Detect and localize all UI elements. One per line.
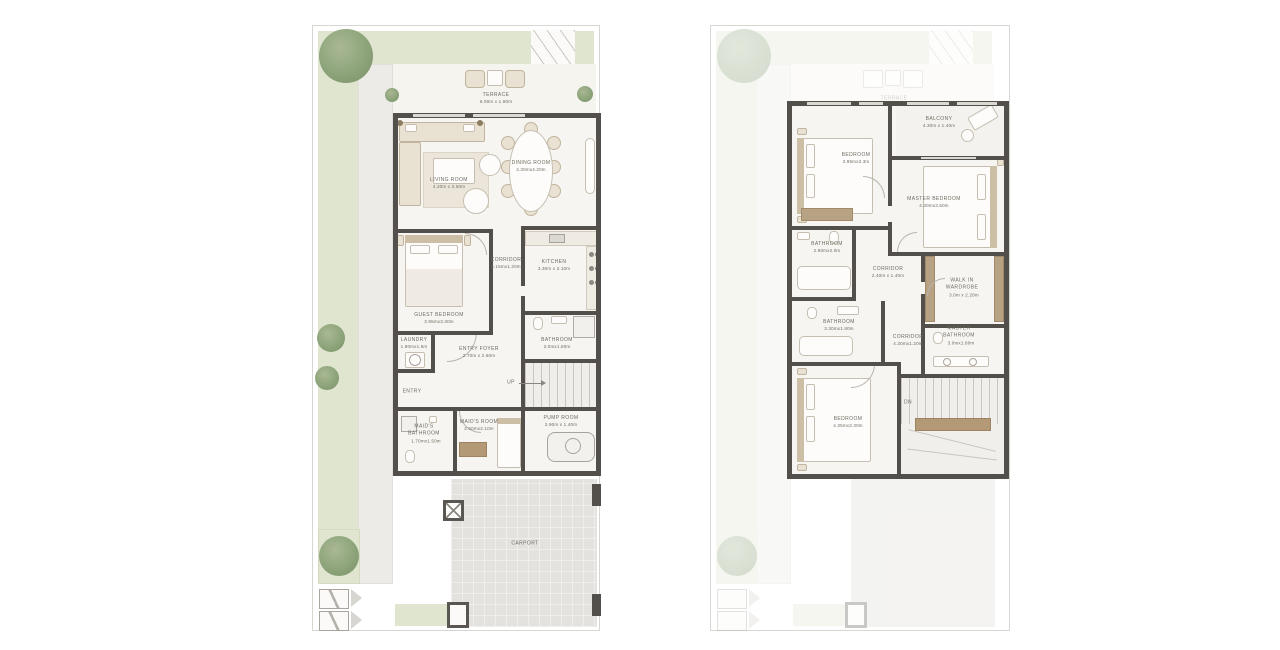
room-label-kitchen: KITCHEN 3.30m x 3.10m [538, 259, 570, 273]
room-label-terrace: TERRACE 6.00m x 1.80m [480, 92, 512, 106]
credenza [585, 138, 595, 194]
room-label-balcony: BALCONY 4.30m x 1.40m [923, 116, 955, 130]
tree [319, 29, 373, 83]
room-label-maids-room: MAID'S ROOM 2.60mx2.10m [460, 419, 498, 433]
bed-pillow [977, 214, 986, 240]
room-dims: 2.70m x 2.60m [459, 353, 499, 360]
wall [393, 113, 398, 476]
room-name: ENTRY [403, 388, 422, 395]
glass-door [413, 114, 465, 117]
terrace-table [487, 70, 503, 86]
wall [852, 230, 856, 297]
wall [393, 407, 525, 411]
room-label-master-bathroom: MASTER BATHROOM 3.0mx1.80m [939, 325, 983, 346]
sofa-pillow [405, 124, 417, 132]
window [907, 102, 949, 105]
room-dims: 3.0mx1.80m [541, 344, 573, 351]
utility-meter [319, 589, 349, 609]
bed-blanket [406, 269, 462, 306]
room-dims: 4.30mx1.20m [893, 341, 923, 348]
toilet [807, 307, 817, 319]
wall [596, 113, 601, 476]
wall-stub [592, 594, 601, 616]
sliding-door [921, 157, 976, 159]
room-name: BEDROOM [833, 416, 862, 423]
nightstand [797, 368, 807, 375]
carport-floor [851, 478, 995, 627]
gate-marker [351, 611, 362, 629]
room-dims: 3.0m x 2.20m [941, 292, 987, 299]
utility-meter [717, 589, 747, 609]
garden-strip-bottom [395, 604, 447, 626]
room-name: ENTRY FOYER [459, 346, 499, 353]
utility-meter [717, 611, 747, 631]
ground-floor-plan: TERRACE 6.00m x 1.80m LIVING ROOM 4.20m … [312, 25, 600, 631]
dresser [459, 442, 487, 457]
utility-meter [319, 611, 349, 631]
room-dims: 3.30mx1.80m [823, 326, 855, 333]
room-dims: 4.35mx3.30m [833, 423, 862, 430]
stair-winder-line [907, 449, 996, 461]
room-dims: 1.90mx1.6m [401, 344, 428, 351]
room-dims: 2.90m x 1.40m [544, 422, 579, 429]
room-name: LIVING ROOM [430, 177, 468, 184]
stove-burner [589, 252, 594, 257]
room-dims: 3.0mx1.80m [939, 340, 983, 347]
balcony-table [961, 129, 974, 142]
room-name: BATHROOM [811, 241, 843, 248]
room-name: BEDROOM [842, 152, 871, 159]
room-dims: 2.60mx2.10m [460, 426, 498, 433]
room-name: BATHROOM [541, 337, 573, 344]
room-name: CORRIDOR [872, 266, 904, 273]
sink [429, 416, 437, 423]
garden-strip-bottom [793, 604, 845, 626]
tree [317, 324, 345, 352]
room-dims: 2.80mx2.0m [811, 248, 843, 255]
tree [717, 29, 771, 83]
room-name: DN [904, 399, 912, 406]
nightstand [397, 235, 404, 246]
basin [969, 358, 977, 366]
terrace-armchair [863, 70, 883, 88]
sink [797, 232, 810, 240]
room-dims: 1.70mx1.50m [406, 438, 446, 445]
stairs-down-label: DN [904, 399, 912, 406]
stove-burner [589, 266, 594, 271]
room-dims: 3.95mx3.30m [414, 319, 464, 326]
room-label-pump-room: PUMP ROOM 2.90m x 1.40m [544, 415, 579, 429]
room-label-bedroom-2: BEDROOM 4.35mx3.30m [833, 416, 862, 430]
bed-pillow [410, 245, 430, 254]
bed-pillow [806, 416, 815, 442]
nightstand [797, 128, 807, 135]
room-dims: 4.15mx1.20m [491, 264, 521, 271]
room-label-carport: CARPORT [511, 540, 538, 547]
nightstand [797, 464, 807, 471]
wall [521, 359, 601, 363]
bush [385, 88, 399, 102]
room-dims: 6.00m x 1.80m [480, 99, 512, 106]
room-label-living-room: LIVING ROOM 4.20m x 3.50m [430, 177, 468, 191]
bathtub [799, 336, 853, 356]
wardrobe [801, 208, 853, 221]
wall [897, 362, 901, 479]
window [859, 102, 883, 105]
column-shaft [443, 500, 464, 521]
basin [943, 358, 951, 366]
room-label-walk-in-wardrobe: WALK IN WARDROBE 3.0m x 2.20m [941, 277, 987, 298]
room-name: UP [507, 379, 515, 386]
sofa-pillow [463, 124, 475, 132]
carport-floor [451, 479, 597, 627]
wall [787, 101, 792, 479]
room-name: KITCHEN [538, 259, 570, 266]
stairs-up-label: UP [507, 379, 515, 386]
bed [497, 418, 521, 468]
staircase [525, 363, 596, 407]
entry-gate-top [531, 30, 575, 64]
bed-pillow [806, 384, 815, 410]
room-label-corridor-2: CORRIDOR 4.30mx1.20m [893, 334, 923, 348]
wall [888, 252, 1009, 256]
room-name: CORRIDOR [893, 334, 923, 341]
first-floor-plan: TERRACE BEDROOM 3. [710, 25, 1010, 631]
sofa [399, 142, 421, 206]
tree [315, 366, 339, 390]
gate-marker [351, 589, 362, 607]
room-dims: 4.30mx3.60m [907, 203, 961, 210]
room-dims: 3.30m x 3.10m [538, 266, 570, 273]
wall [899, 374, 1009, 378]
bed-headboard [990, 166, 997, 248]
wall [792, 226, 892, 230]
stove-burner [589, 280, 594, 285]
room-label-dining-room: DINING ROOM 4.30mx4.20m [512, 160, 551, 174]
bed-pillow [806, 144, 815, 168]
terrace-armchair [903, 70, 923, 88]
wall-stub [592, 484, 601, 506]
terrace-armchair [505, 70, 525, 88]
terrace-table [885, 70, 901, 86]
room-label-corridor: CORRIDOR 4.15mx1.20m [491, 257, 521, 271]
side-walkway [756, 64, 791, 584]
room-label-entry-foyer: ENTRY FOYER 2.70m x 2.60m [459, 346, 499, 360]
double-vanity [933, 356, 989, 367]
room-name: MASTER BEDROOM [907, 196, 961, 203]
bed-pillow [438, 245, 458, 254]
pedestrian-door [845, 602, 867, 628]
room-label-bathroom-1: BATHROOM 2.80mx2.0m [811, 241, 843, 255]
wall [792, 362, 897, 366]
room-name: BALCONY [923, 116, 955, 123]
window [807, 102, 851, 105]
room-name: CARPORT [511, 540, 538, 547]
room-label-entry: ENTRY [403, 388, 422, 395]
pedestrian-door [447, 602, 469, 628]
wall [521, 311, 601, 315]
room-name: LAUNDRY [401, 337, 428, 344]
side-table [479, 154, 501, 176]
up-arrow-icon [541, 380, 546, 386]
room-name: WALK IN WARDROBE [941, 277, 983, 292]
room-label-master-bedroom: MASTER BEDROOM 4.30mx3.60m [907, 196, 961, 210]
stair-handrail [915, 418, 991, 431]
room-label-bathroom-2: BATHROOM 3.30mx1.80m [823, 319, 855, 333]
gate-marker [749, 589, 760, 607]
pump [565, 438, 581, 454]
garden-strip-left [318, 31, 358, 584]
tree [319, 536, 359, 576]
stair-winder-line [908, 429, 996, 452]
gate-marker [749, 611, 760, 629]
terrace-armchair [465, 70, 485, 88]
wall [393, 229, 493, 233]
room-name: GUEST BEDROOM [414, 312, 464, 319]
room-name: PUMP ROOM [544, 415, 579, 422]
wall [921, 256, 925, 282]
toilet [405, 450, 415, 463]
wall [521, 226, 601, 230]
room-label-guest-bedroom: GUEST BEDROOM 3.95mx3.30m [414, 312, 464, 326]
room-label-bedroom-1: BEDROOM 3.95mx3.3m [842, 152, 871, 166]
kitchen-sink [549, 234, 565, 243]
room-name: BATHROOM [823, 319, 855, 326]
wall [453, 411, 457, 471]
bed-headboard [405, 235, 463, 243]
wall [521, 411, 525, 471]
bush [577, 86, 593, 102]
room-name: MAID'S BATHROOM [406, 423, 442, 438]
wall [489, 229, 493, 335]
sink [551, 316, 567, 324]
side-table [463, 188, 489, 214]
room-label-corridor-1: CORRIDOR 2.40m x 1.40m [872, 266, 904, 280]
room-dims: 4.30mx4.20m [512, 167, 551, 174]
tree [717, 536, 757, 576]
room-dims: 3.95mx3.3m [842, 159, 871, 166]
shower [573, 316, 595, 338]
room-name: CORRIDOR [491, 257, 521, 264]
side-walkway [358, 64, 393, 584]
sink [837, 306, 859, 315]
room-label-bathroom: BATHROOM 3.0mx1.80m [541, 337, 573, 351]
garden-strip-left [716, 31, 756, 584]
room-name: MASTER BATHROOM [939, 325, 979, 340]
floor-lamp [477, 120, 483, 126]
wall [521, 407, 601, 411]
up-arrow-line [519, 383, 541, 384]
glass-door [473, 114, 525, 117]
entry-gate-top [929, 30, 973, 64]
washer-drum [409, 354, 421, 366]
wall [393, 331, 493, 335]
room-label-maids-bathroom: MAID'S BATHROOM 1.70mx1.50m [406, 423, 446, 444]
room-name: TERRACE [480, 92, 512, 99]
wall [881, 301, 885, 362]
bed-headboard [497, 418, 521, 424]
wall [393, 471, 601, 476]
wall [521, 226, 525, 286]
bathtub [797, 266, 851, 290]
window [957, 102, 997, 105]
room-name: DINING ROOM [512, 160, 551, 167]
bed-pillow [806, 174, 815, 198]
room-label-laundry: LAUNDRY 1.90mx1.6m [401, 337, 428, 351]
room-dims: 4.20m x 3.50m [430, 184, 468, 191]
room-name: MAID'S ROOM [460, 419, 498, 426]
room-dims: 4.30m x 1.40m [923, 123, 955, 130]
wall [792, 297, 856, 301]
wall [431, 335, 435, 373]
bed-headboard [797, 138, 804, 214]
stairwell [901, 378, 1004, 474]
toilet [533, 317, 543, 330]
wall [393, 369, 435, 373]
bed-headboard [797, 378, 804, 462]
closet [994, 256, 1004, 322]
bed-pillow [977, 174, 986, 200]
room-dims: 2.40m x 1.40m [872, 273, 904, 280]
